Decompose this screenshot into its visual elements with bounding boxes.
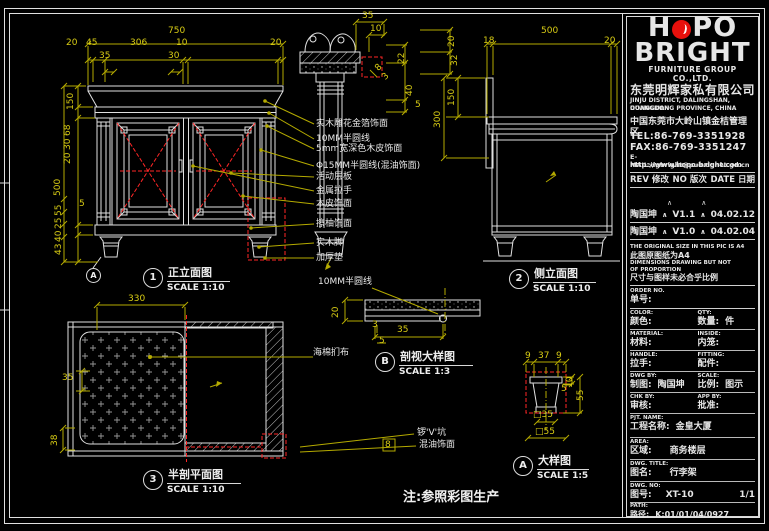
drawn-by-value: 陶国坤 [658, 380, 685, 390]
sheet-count: 1/1 [739, 490, 755, 501]
dim-label: 9 [525, 352, 531, 361]
path-value: K:01/01/04/0927 [655, 510, 729, 519]
view-title-side: 侧立面图 SCALE 1:10 [533, 267, 596, 295]
area-row: AREA: 区域:商务楼层 [630, 439, 755, 460]
dim-label: 45 [86, 39, 97, 48]
dim-label: 5 [379, 337, 385, 346]
callout-label: 海棉扪布 [313, 349, 349, 358]
dim-label: 5 [415, 101, 421, 110]
view-title-front: 正立面图 SCALE 1:10 [167, 266, 230, 294]
website: http://www.hopo-bright.com [630, 161, 755, 173]
callout-label: 10MM半圆线 [316, 135, 370, 144]
view-title-text: 正立面图 [167, 266, 230, 282]
logo-subtitle: FURNITURE GROUP CO.,LTD. [630, 65, 755, 83]
logo-red-o-icon [672, 20, 691, 39]
notice-line: 尺寸与图样未必合乎比例 [630, 273, 755, 286]
callout-label: Φ15MM半圆线(混油饰面) [316, 162, 420, 171]
field-row: CHK BY:APP BY: 审核:批准: [630, 394, 755, 414]
phone: TEL:86-769-3351928 [630, 131, 755, 142]
dim-label: 20 [66, 39, 77, 48]
order-no-cn: 单号: [630, 295, 755, 309]
view-scale-text: SCALE 1:5 [537, 471, 589, 482]
dim-label: 20 [64, 153, 73, 164]
dim-label: 35 [99, 52, 110, 61]
callout-label: 实木脚 [316, 239, 343, 248]
rev-version: V1.0 [672, 226, 695, 238]
field-row: HANDLE:FITTING: 拉手:配件: [630, 352, 755, 372]
view-scale-text: SCALE 1:10 [167, 283, 230, 294]
field-row: DWG BY:SCALE: 制图:陶国坤 比例:图示 [630, 373, 755, 393]
callout-label: 锣'V'坑 [417, 429, 446, 438]
project-name-value: 金皇大厦 [676, 422, 712, 432]
dim-label: 32 [451, 55, 460, 66]
delta-mark: ∧ ∧ [667, 190, 755, 209]
field-row: MATERIAL:INSIDE: 材料:内笼: [630, 331, 755, 351]
view-scale-text: SCALE 1:10 [167, 485, 241, 496]
revision-header: REV 修改 NO 版次 DATE 日期 [630, 175, 755, 188]
dim-label: 18 [483, 37, 494, 46]
dim-label: □35 [533, 411, 553, 420]
drawing-title-row: DWG. TITLE: 图名:行李架 [630, 461, 755, 482]
dim-label: 30 [168, 52, 179, 61]
view-marker-b: B [375, 352, 395, 372]
dim-label: 20 [270, 39, 281, 48]
dim-label: 500 [541, 27, 558, 36]
view-scale-text: SCALE 1:3 [399, 367, 473, 378]
order-no-row: ORDER NO. 单号: [630, 288, 755, 309]
view-title-text: 大样图 [537, 454, 589, 470]
dim-label: 10 [566, 377, 575, 388]
path-row: PATH: 路径:K:01/01/04/0927 [630, 503, 755, 520]
detail-ref-marker-a: A [86, 268, 101, 283]
dim-label: 8 [385, 441, 391, 450]
callout-label: 加厚垫 [316, 254, 343, 263]
production-note: 注:参照彩图生产 [403, 490, 499, 505]
rev-date: 04.02.04 [711, 226, 755, 238]
cad-drawing-sheet: 750 20 45 306 10 20 35 30 150 68 30 20 5… [0, 0, 769, 531]
dim-label: 500 [54, 179, 63, 196]
callout-label: 金属拉手 [316, 187, 352, 196]
view-title-plan: 半剖平面图 SCALE 1:10 [167, 468, 241, 496]
rev-date: 04.02.12 [711, 209, 755, 221]
field-row: COLOR:QTY: 颜色:数量:件 [630, 310, 755, 330]
drawing-title-value: 行李架 [670, 468, 697, 478]
revision-row: 陶国坤 ∧ V1.1 ∧ 04.02.12 [630, 209, 755, 223]
logo-brand: BRIGHT [630, 41, 755, 65]
view-title-text: 侧立面图 [533, 267, 596, 283]
dim-label: 9 [556, 352, 562, 361]
dim-label: 300 [434, 111, 443, 128]
rev-name: 陶国坤 [630, 226, 657, 238]
dim-label: 20 [604, 37, 615, 46]
dim-label: 5 [79, 200, 85, 209]
dim-label: 150 [448, 89, 457, 106]
company-name-cn: 东莞明辉家私有限公司 [630, 83, 755, 97]
rev-col: REV 修改 [630, 175, 669, 186]
callout-label: 10MM半圆线 [318, 278, 372, 287]
date-col: DATE 日期 [710, 175, 755, 186]
dim-label: 55 [577, 390, 586, 401]
dim-label: 22 [398, 53, 407, 64]
section-detail-b-linework [365, 300, 480, 322]
view-scale-text: SCALE 1:10 [533, 284, 596, 295]
dim-label: 40 [406, 85, 415, 96]
dim-label: 35 [62, 374, 73, 383]
area-value: 商务楼层 [670, 446, 706, 456]
callout-label: 木皮饰面 [316, 200, 352, 209]
dim-label: 10 [176, 39, 187, 48]
rev-name: 陶国坤 [630, 209, 657, 221]
size-notice: THE ORIGINAL SIZE IN THIS PIC IS A4 此图原图… [630, 244, 755, 286]
view-marker-3: 3 [143, 470, 163, 490]
dim-label: 20 [448, 36, 457, 47]
callout-label: 活动层板 [316, 173, 352, 182]
dim-label: 750 [168, 27, 185, 36]
dim-label: 55 [55, 205, 64, 216]
title-block: H PO BRIGHT FURNITURE GROUP CO.,LTD. 东莞明… [626, 16, 759, 517]
rev-version: V1.1 [672, 209, 695, 221]
view-marker-1: 1 [143, 268, 163, 288]
project-name-row: PJT. NAME: 工程名称:金皇大厦 [630, 415, 755, 438]
dim-label: 37 [538, 352, 549, 361]
side-elevation-linework [483, 78, 620, 261]
callout-label: 混油饰面 [419, 441, 455, 450]
dim-label: 150 [67, 93, 76, 110]
fax: FAX:86-769-3351247 [630, 142, 755, 153]
view-title-text: 剖视大样图 [399, 350, 473, 366]
front-elevation-linework [88, 86, 283, 268]
dim-label: 38 [51, 435, 60, 446]
view-marker-2: 2 [509, 269, 529, 289]
revision-row: 陶国坤 ∧ V1.0 ∧ 04.02.04 [630, 226, 755, 240]
dim-label: 68 [64, 125, 73, 136]
dim-label: 330 [128, 295, 145, 304]
callout-label: 实木雕花金箔饰面 [316, 120, 388, 129]
dim-label: 35 [397, 326, 408, 335]
dim-label: 5 [561, 385, 567, 394]
callout-label: 5mm宽深色木皮饰面 [316, 145, 402, 154]
scale-value: 图示 [725, 380, 743, 390]
callout-label: 擦柚饰面 [316, 220, 352, 229]
dim-label: 3 [372, 321, 378, 330]
logo: H PO BRIGHT FURNITURE GROUP CO.,LTD. 东莞明… [630, 15, 755, 97]
dim-label: 35 [362, 12, 373, 21]
view-title-text: 半剖平面图 [167, 468, 241, 484]
dim-label: 43 [55, 244, 64, 255]
address-line: GUANGDONG PROVINCE, CHINA [630, 105, 755, 113]
drawing-no-value: XT-10 [666, 490, 694, 500]
dim-label: 30 [64, 139, 73, 150]
qty-value: 件 [725, 317, 734, 327]
plan-view-linework [68, 322, 283, 456]
dim-label: 306 [130, 39, 147, 48]
drawing-no-row: DWG. NO: 图号:XT-10 1/1 [630, 483, 755, 503]
view-title-detail-a: 大样图 SCALE 1:5 [537, 454, 589, 482]
dim-label: □55 [535, 428, 555, 437]
notice-line: 此图原图纸为A4 [630, 251, 755, 261]
dim-label: 40 [55, 231, 64, 242]
dim-label: 20 [332, 307, 341, 318]
dim-label: 25 [55, 218, 64, 229]
dim-label: 10 [370, 25, 381, 34]
view-title-section-b: 剖视大样图 SCALE 1:3 [399, 350, 473, 378]
notice-line: THE ORIGINAL SIZE IN THIS PIC IS A4 [630, 244, 755, 251]
no-col: NO 版次 [673, 175, 707, 186]
view-marker-a: A [513, 456, 533, 476]
